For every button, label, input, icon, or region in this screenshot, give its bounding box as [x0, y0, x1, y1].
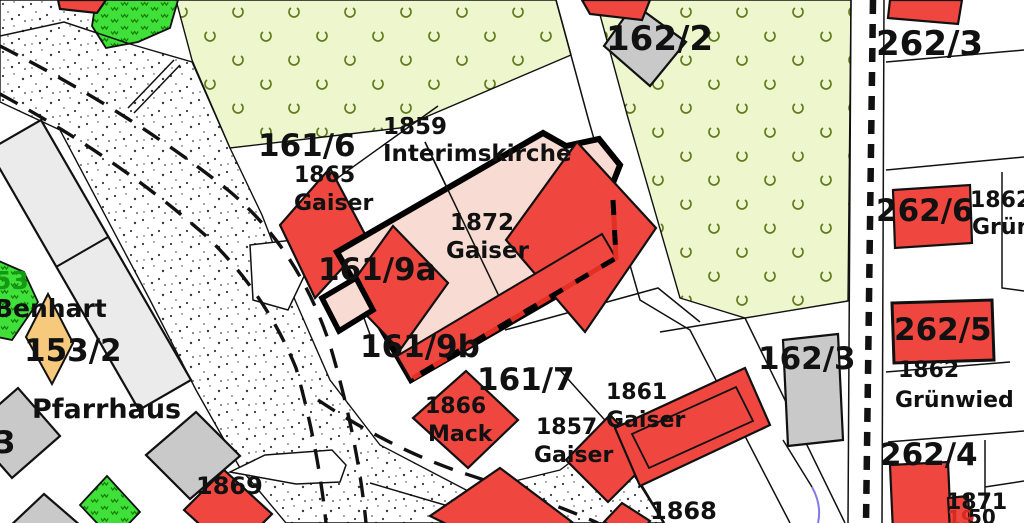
building-red-262-3 — [888, 0, 962, 24]
owner-label-gaiser-1872: Gaiser — [446, 240, 529, 263]
house-label-1861: 1861 — [606, 382, 667, 404]
stream-line — [812, 487, 819, 523]
house-label-1859: 1859 — [383, 116, 447, 139]
house-label-1872: 1872 — [450, 212, 514, 235]
footpath-dashed-line — [866, 0, 873, 523]
owner-label-gaiser-1857: Gaiser — [534, 445, 613, 467]
parcel-label-161-7: 161/7 — [477, 365, 575, 396]
house-label-1862-lower: 1862 — [898, 360, 959, 382]
parcel-label-161-9b: 161/9b — [360, 332, 480, 363]
parcel-label-162-2: 162/2 — [606, 22, 713, 56]
parcel-label-262-4: 262/4 — [880, 440, 978, 471]
cadastral-map[interactable]: 162/2 262/3 161/6 1859 Interimskirche 18… — [0, 0, 1024, 523]
house-label-1866: 1866 — [425, 396, 486, 418]
meadow-area-top — [92, 0, 178, 48]
house-label-1865: 1865 — [294, 165, 355, 187]
building-red-above-162-2 — [582, 0, 650, 20]
label-interimskirche: Interimskirche — [383, 143, 572, 166]
house-label-1869: 1869 — [196, 474, 263, 498]
meadow-area-bottom — [80, 476, 140, 523]
parcel-label-53-partial: 53 — [0, 268, 29, 293]
parcel-label-162-3: 162/3 — [758, 344, 856, 375]
owner-label-gruenwied-lower: Grünwied — [895, 390, 1014, 412]
parcel-label-3-partial: 3 — [0, 428, 16, 459]
owner-label-gruenwied-upper: Grünwied — [972, 217, 1024, 239]
house-label-1862-upper: 1862 — [970, 190, 1024, 212]
parcel-label-262-5: 262/5 — [894, 315, 992, 346]
parcel-label-262-3: 262/3 — [876, 27, 983, 61]
label-pfarrhaus: Pfarrhaus — [32, 396, 181, 423]
parcel-label-153-2: 153/2 — [24, 336, 122, 367]
building-gray-pfarrhaus-south — [8, 494, 88, 523]
orchard-area-top — [176, 0, 571, 148]
owner-label-gaiser-1865: Gaiser — [294, 193, 373, 215]
house-label-50-partial: 50 — [968, 507, 996, 523]
parcel-label-161-9a: 161/9a — [318, 255, 437, 286]
owner-label-benhart: Benhart — [0, 296, 107, 321]
parcel-label-161-6: 161/6 — [258, 131, 356, 162]
house-label-1868: 1868 — [650, 499, 717, 523]
owner-label-mack: Mack — [428, 424, 492, 446]
owner-label-gaiser-1861: Gaiser — [606, 410, 685, 432]
parcel-label-262-6: 262/6 — [876, 196, 974, 227]
house-label-1857: 1857 — [536, 417, 597, 439]
